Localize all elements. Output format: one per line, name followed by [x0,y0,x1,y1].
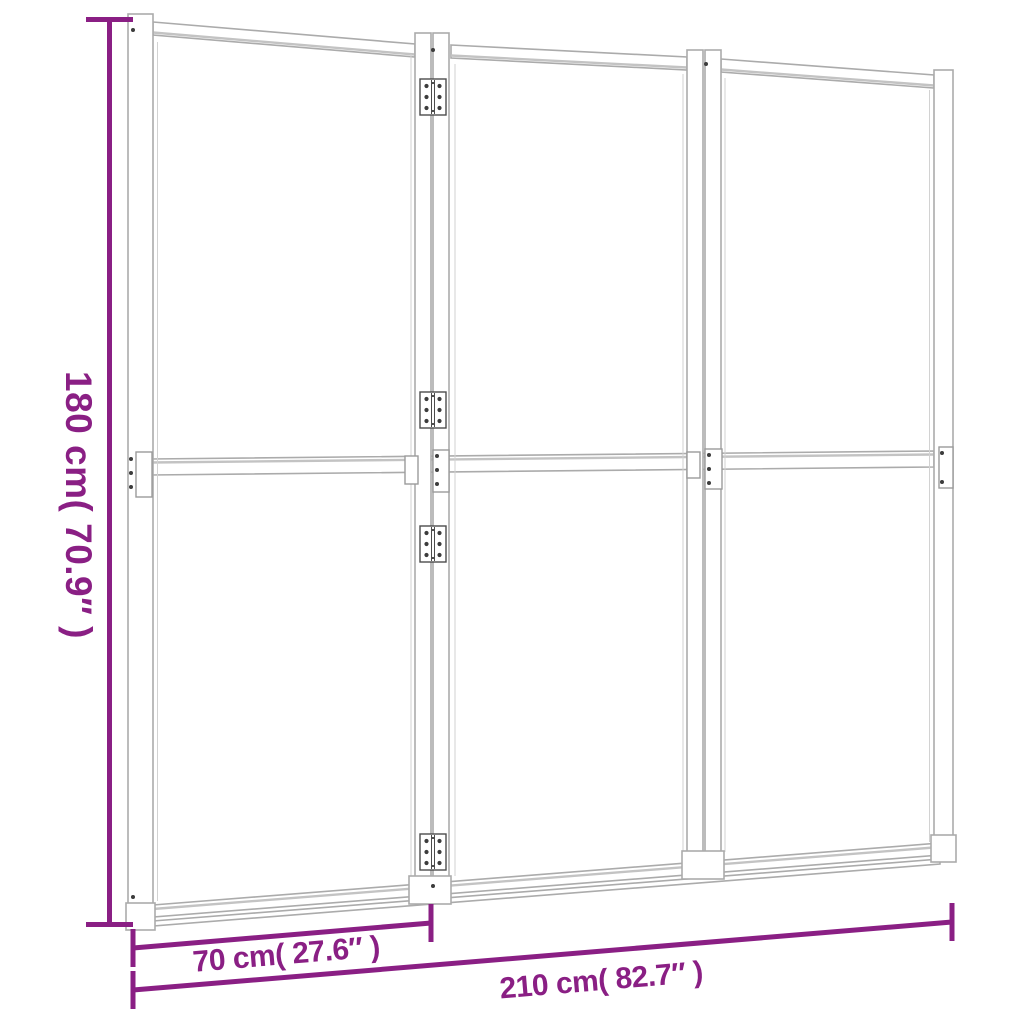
post-foot [931,835,956,862]
screw-dot [131,28,135,32]
screw-dot [431,48,435,52]
post-foot [409,876,451,904]
screw-dot [129,471,133,475]
screw-dot [940,451,944,455]
screw-dot [940,480,944,484]
screw-dot [435,482,439,486]
rail-bracket [405,456,418,484]
bottom-rail-base-strip [153,859,940,926]
hinge-icon [420,79,446,115]
total-width-dimension-label: 210 cm( 82.7″ ) [498,956,704,1006]
rail-bracket [136,452,152,497]
height-dimension: 180 cm( 70.9″ ) [58,17,133,927]
post-foot [682,851,724,879]
bottom-rail-shade-line [153,847,940,909]
divider-drawing [126,14,956,930]
screw-dot [707,467,711,471]
bottom-rail [153,843,940,917]
hinge-icon [420,526,446,562]
room-divider-dimension-diagram: 180 cm( 70.9″ ) 70 cm( 27.6″ ) 210 cm( 8… [0,0,1024,1024]
height-dimension-label: 180 cm( 70.9″ ) [58,371,99,639]
hinge-icon [420,392,446,428]
screw-dot [707,481,711,485]
screw-dot [129,485,133,489]
hinge-icon [420,834,446,870]
screw-dot [707,453,711,457]
screw-dot [704,62,708,66]
screw-dot [129,457,133,461]
screw-dot [431,884,435,888]
screw-dot [131,895,135,899]
screw-dot [435,468,439,472]
screw-dot [435,454,439,458]
rail-bracket [687,452,700,478]
